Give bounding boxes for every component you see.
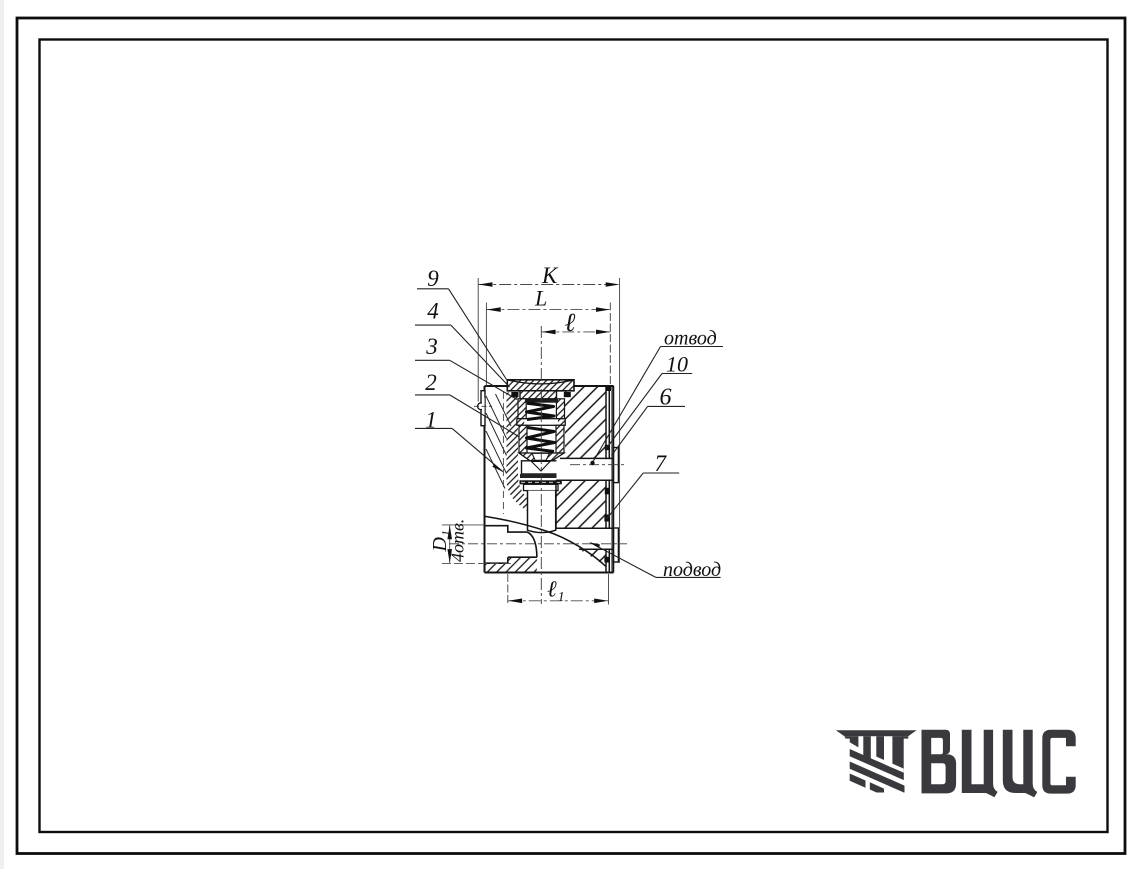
svg-text:7: 7 xyxy=(655,451,668,476)
svg-text:ℓ: ℓ xyxy=(565,308,576,337)
svg-text:2: 2 xyxy=(425,370,437,395)
svg-text:подвод: подвод xyxy=(663,559,721,581)
svg-text:10: 10 xyxy=(666,352,688,377)
svg-text:6: 6 xyxy=(660,385,672,411)
svg-text:К: К xyxy=(541,263,559,288)
svg-text:ℓ₁: ℓ₁ xyxy=(547,577,565,602)
svg-text:4: 4 xyxy=(427,299,439,324)
svg-text:1: 1 xyxy=(425,408,437,433)
svg-text:4отв.: 4отв. xyxy=(448,519,468,562)
svg-text:L: L xyxy=(534,286,547,311)
svg-text:9: 9 xyxy=(427,266,439,291)
svg-text:отвод: отвод xyxy=(664,328,717,350)
svg-text:3: 3 xyxy=(425,334,438,359)
